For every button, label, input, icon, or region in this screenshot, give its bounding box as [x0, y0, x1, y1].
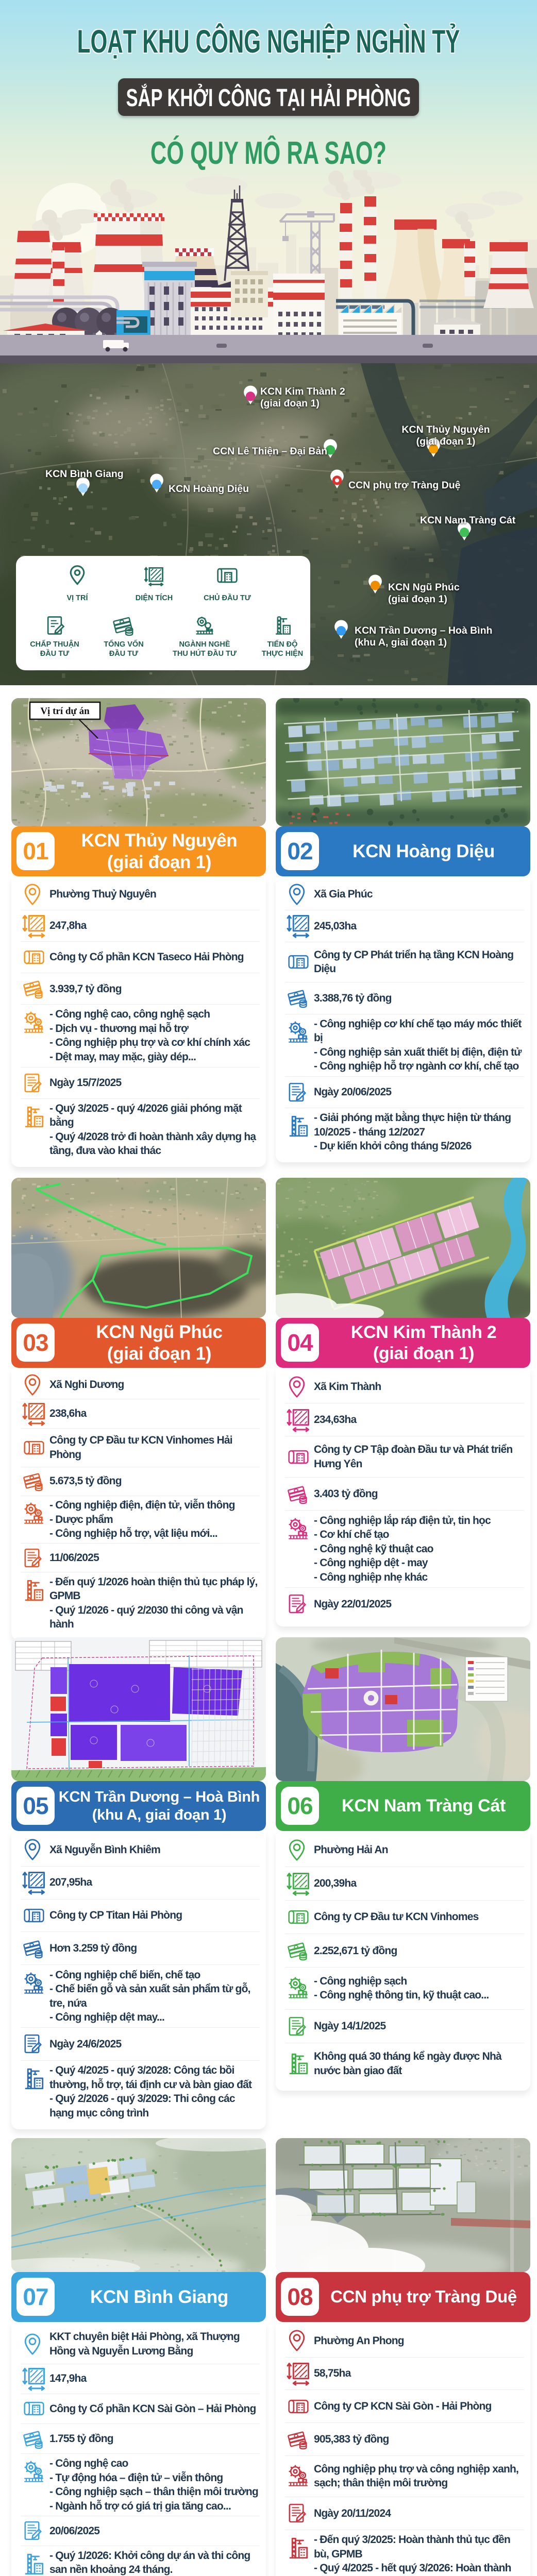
svg-text:Vị trí dự án: Vị trí dự án: [40, 706, 90, 717]
